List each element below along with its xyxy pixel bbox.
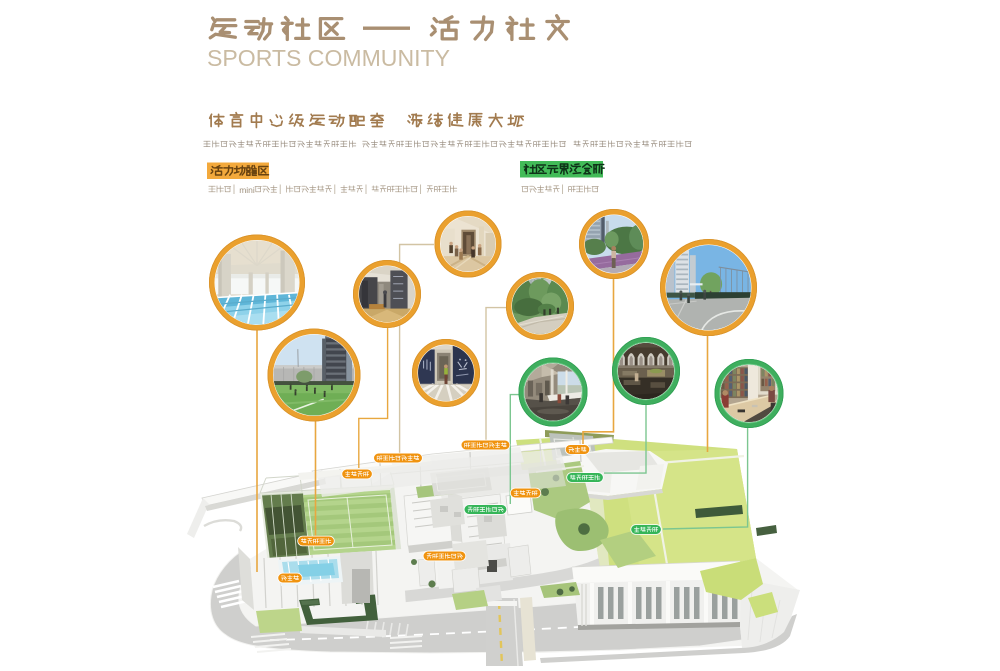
svg-text:SPORTS COMMUNITY: SPORTS COMMUNITY	[207, 45, 450, 71]
svg-text:mini: mini	[239, 185, 255, 195]
